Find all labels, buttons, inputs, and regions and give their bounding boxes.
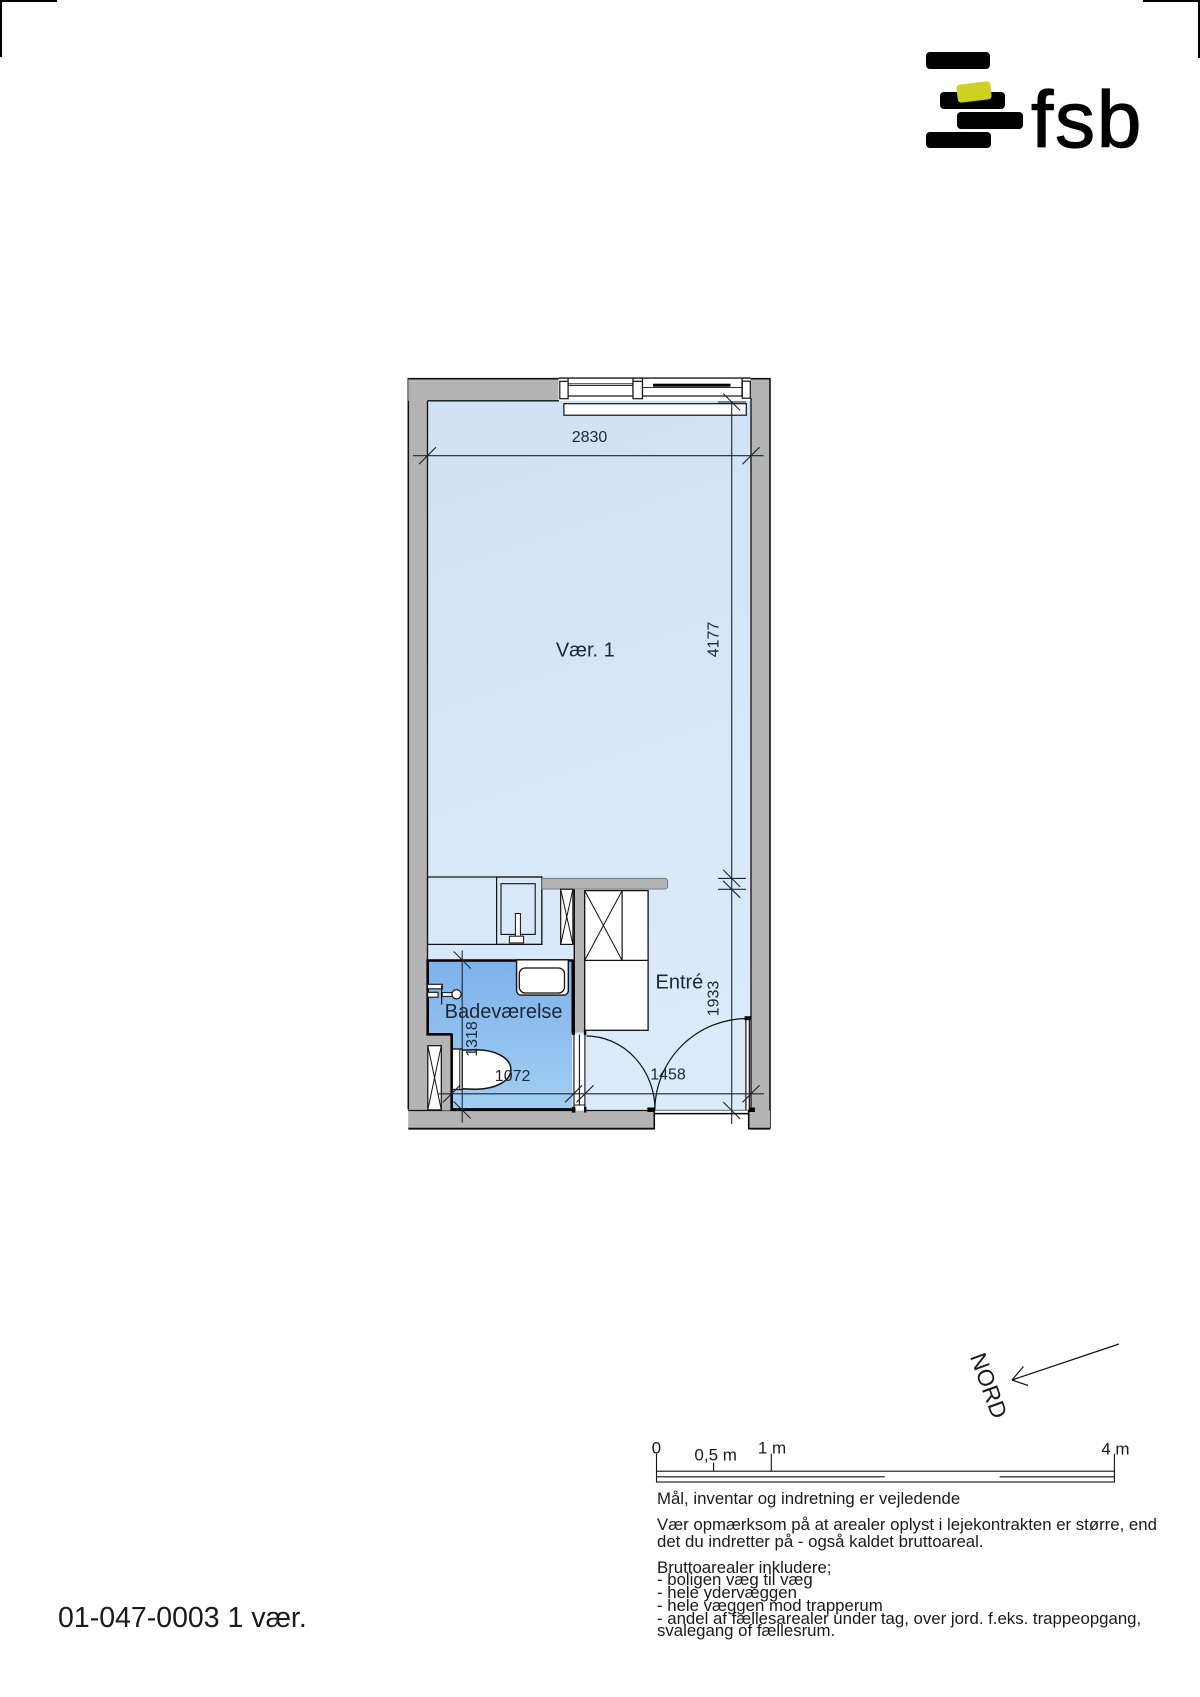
svg-text:Vær. 1: Vær. 1 — [556, 640, 615, 662]
svg-text:1072: 1072 — [495, 1068, 531, 1085]
svg-text:1933: 1933 — [706, 981, 723, 1017]
svg-text:Entré: Entré — [655, 972, 703, 994]
svg-text:4177: 4177 — [706, 622, 723, 658]
svg-text:4 m: 4 m — [1101, 1439, 1129, 1458]
svg-text:0: 0 — [652, 1438, 661, 1457]
svg-text:2830: 2830 — [572, 429, 608, 446]
svg-text:1 m: 1 m — [758, 1438, 786, 1457]
svg-text:Badeværelse: Badeværelse — [445, 1001, 563, 1023]
svg-text:1318: 1318 — [464, 1021, 481, 1057]
svg-text:NORD: NORD — [965, 1349, 1013, 1422]
svg-text:1458: 1458 — [650, 1066, 686, 1083]
svg-text:0,5 m: 0,5 m — [694, 1446, 737, 1465]
